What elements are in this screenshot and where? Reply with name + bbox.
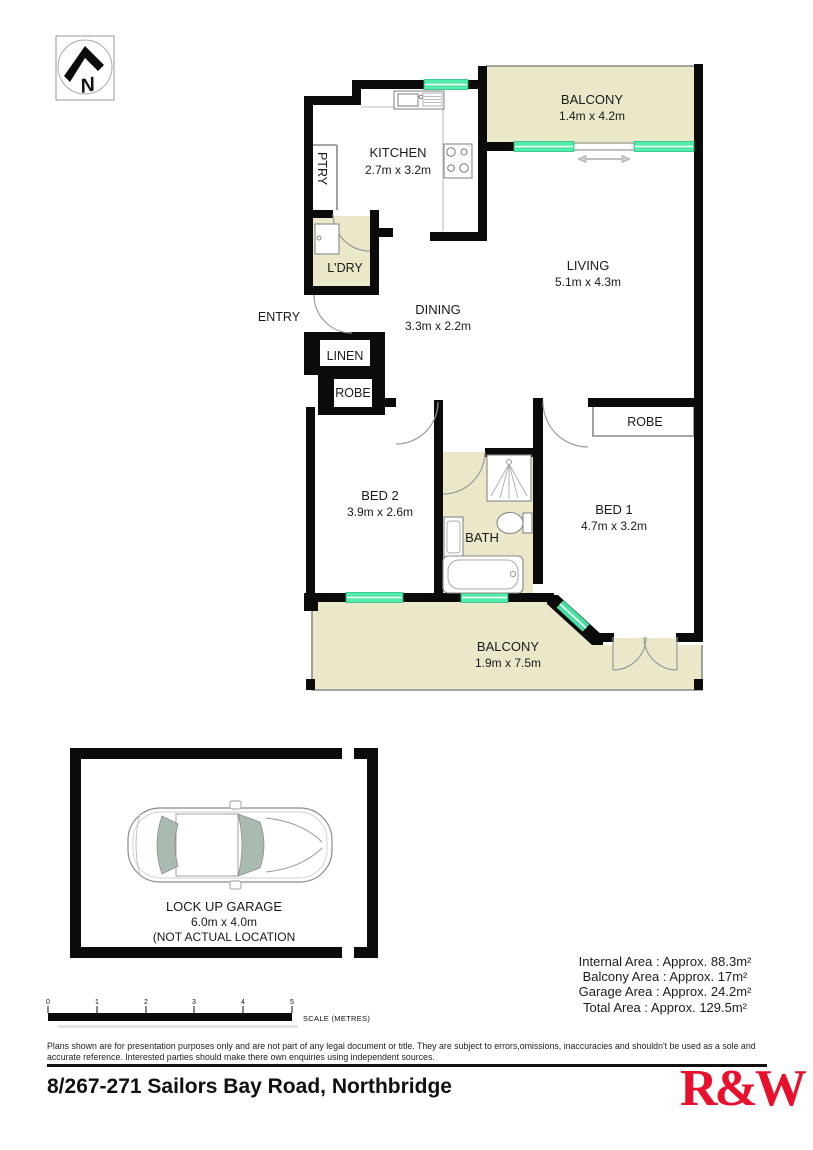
property-address: 8/267-271 Sailors Bay Road, Northbridge [47, 1075, 452, 1099]
floor-plan-page: N [0, 0, 813, 1150]
window [634, 142, 694, 152]
room-label-kitchen: KITCHEN [369, 145, 426, 160]
double-arrow-icon [578, 156, 630, 163]
window [514, 142, 574, 152]
kitchen-sink-icon [394, 91, 444, 109]
room-dims-dining: 3.3m x 2.2m [405, 319, 471, 333]
north-letter: N [78, 73, 97, 98]
room-label-balcony-bottom: BALCONY [477, 639, 539, 654]
room-dims-kitchen: 2.7m x 3.2m [365, 163, 431, 177]
scale-tick: 3 [192, 999, 196, 1006]
total-area: Total Area : Approx. 129.5m² [540, 1000, 790, 1015]
room-label-robe-hall: ROBE [335, 386, 370, 400]
garage-note: (NOT ACTUAL LOCATION [153, 930, 295, 944]
window [346, 593, 403, 603]
shower-icon [487, 455, 531, 501]
disclaimer-text: Plans shown are for presentation purpose… [47, 1041, 769, 1064]
floor-plan-svg: N [0, 0, 813, 1040]
sliding-door-opening [574, 143, 634, 163]
room-dims-bed1: 4.7m x 3.2m [581, 519, 647, 533]
room-label-entry: ENTRY [258, 310, 301, 324]
room-label-bed1: BED 1 [595, 502, 633, 517]
window [424, 80, 468, 90]
room-label-dining: DINING [415, 302, 461, 317]
garage-label: LOCK UP GARAGE [166, 899, 282, 914]
room-label-robe-bed1: ROBE [627, 415, 662, 429]
garage: LOCK UP GARAGE 6.0m x 4.0m (NOT ACTUAL L… [70, 748, 378, 958]
room-label-bed2: BED 2 [361, 488, 399, 503]
room-label-laundry: L'DRY [327, 261, 363, 275]
room-dims-living: 5.1m x 4.3m [555, 275, 621, 289]
scale-tick: 2 [144, 999, 148, 1006]
room-label-living: LIVING [567, 258, 610, 273]
balcony-area: Balcony Area : Approx. 17m² [540, 969, 790, 984]
scale-tick: 1 [95, 999, 99, 1006]
laundry-tub-icon [315, 224, 339, 254]
garage-area: Garage Area : Approx. 24.2m² [540, 984, 790, 999]
garage-dims: 6.0m x 4.0m [191, 915, 257, 929]
entry-door-arc [314, 295, 352, 333]
bed1-door-arc [543, 402, 588, 447]
room-label-bath: BATH [465, 530, 499, 545]
room-label-pantry: PTRY [315, 152, 329, 186]
north-arrow-icon: N [56, 36, 114, 100]
vanity-sink-icon [444, 517, 463, 557]
bathtub-icon [443, 556, 523, 593]
room-dims-balcony-top: 1.4m x 4.2m [559, 109, 625, 123]
scale-bar: 0 1 2 3 4 5 SCALE (METRES) [46, 999, 370, 1028]
scale-tick: 5 [290, 999, 294, 1006]
toilet-icon [497, 513, 532, 534]
rw-logo: R&W [680, 1062, 792, 1117]
bed2-door-arc [396, 402, 438, 444]
scale-tick: 0 [46, 999, 50, 1006]
room-dims-balcony-bottom: 1.9m x 7.5m [475, 656, 541, 670]
room-dims-bed2: 3.9m x 2.6m [347, 505, 413, 519]
area-summary: Internal Area : Approx. 88.3m² Balcony A… [540, 954, 790, 1015]
stove-icon [444, 144, 472, 178]
internal-area: Internal Area : Approx. 88.3m² [540, 954, 790, 969]
scale-label: SCALE (METRES) [303, 1014, 370, 1023]
window [461, 593, 508, 603]
scale-tick: 4 [241, 999, 245, 1006]
footer-divider [47, 1064, 767, 1067]
room-label-balcony-top: BALCONY [561, 92, 623, 107]
room-label-linen: LINEN [327, 349, 364, 363]
car-icon [128, 801, 332, 889]
